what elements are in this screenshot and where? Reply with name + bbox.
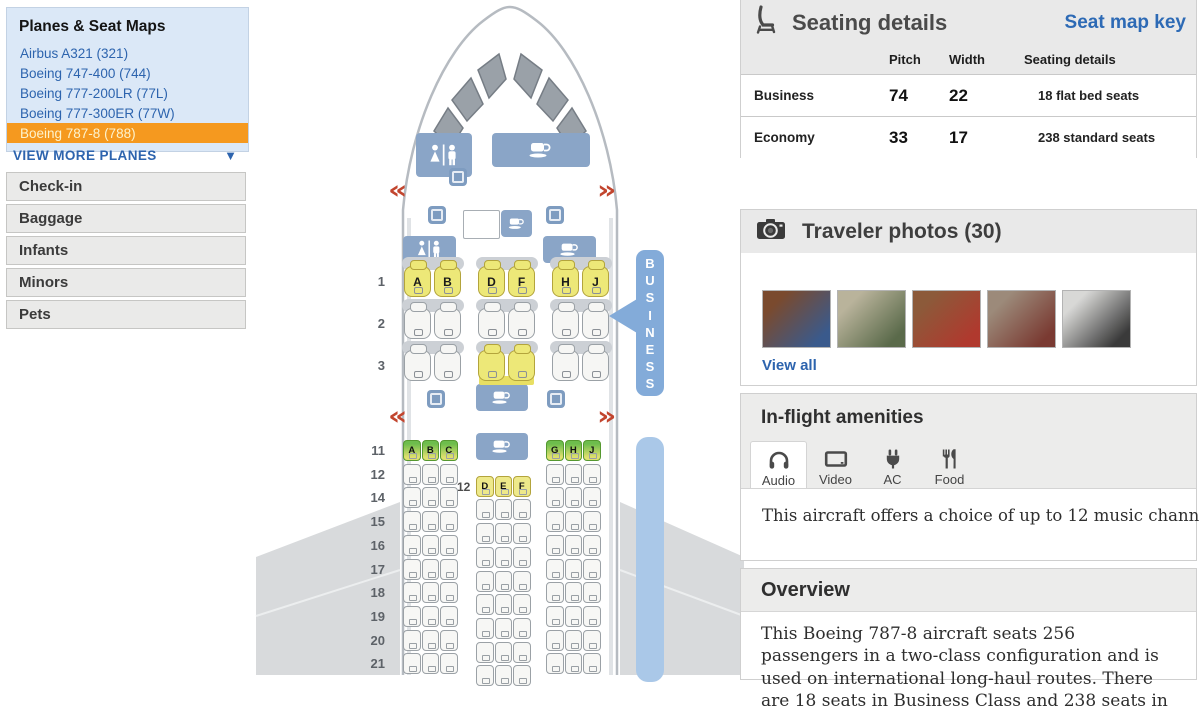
seat[interactable] [582, 308, 609, 339]
seat[interactable] [513, 547, 531, 568]
table-row: Economy3317238 standard seats [741, 116, 1196, 158]
seat[interactable] [546, 582, 564, 603]
closet-icon [547, 390, 565, 408]
amenities-title: In-flight amenities [741, 394, 1196, 429]
traveler-photo[interactable] [837, 290, 906, 348]
sidebar-item-minors[interactable]: Minors [6, 268, 246, 297]
seat-map-key-link[interactable]: Seat map key [1065, 12, 1186, 34]
seat[interactable] [403, 582, 421, 603]
column-header: Seating details [1024, 52, 1196, 67]
photo-strip [741, 253, 1196, 348]
seat[interactable] [552, 350, 579, 381]
seat[interactable] [495, 523, 513, 544]
seat[interactable] [403, 511, 421, 532]
crew-area [463, 210, 500, 239]
seat[interactable] [434, 308, 461, 339]
seat[interactable] [513, 499, 531, 520]
seat[interactable] [434, 350, 461, 381]
plane-link[interactable]: Boeing 747-400 (744) [7, 63, 248, 83]
tab-acpower[interactable]: AC Power [864, 441, 921, 488]
seat-1D[interactable]: D [478, 266, 505, 297]
seating-table: Business742218 flat bed seatsEconomy3317… [741, 74, 1196, 158]
seat[interactable] [476, 547, 494, 568]
view-more-planes[interactable]: VIEW MORE PLANES ▼ [6, 148, 247, 163]
seat[interactable] [403, 487, 421, 508]
seat[interactable] [583, 559, 601, 580]
closet-icon [427, 390, 445, 408]
ac-power-icon [864, 447, 921, 471]
details-value: 238 standard seats [1024, 130, 1196, 145]
seat[interactable] [508, 350, 535, 381]
seat[interactable] [513, 665, 531, 686]
seat[interactable] [476, 618, 494, 639]
seat[interactable] [422, 487, 440, 508]
seat-12F[interactable]: F [513, 476, 531, 497]
seat[interactable] [565, 606, 583, 627]
seat[interactable] [440, 511, 458, 532]
seat[interactable] [440, 582, 458, 603]
tab-video[interactable]: Video [807, 441, 864, 488]
seat[interactable] [404, 350, 431, 381]
seat[interactable] [495, 618, 513, 639]
seat[interactable] [508, 308, 535, 339]
seat[interactable] [403, 464, 421, 485]
seat[interactable] [546, 630, 564, 651]
row-number: 16 [353, 538, 385, 553]
seat-icon [753, 5, 779, 40]
seating-table-header: PitchWidthSeating details [741, 45, 1196, 74]
seat[interactable] [422, 535, 440, 556]
traveler-photos-panel: Traveler photos (30) View all [740, 209, 1197, 386]
amenities-panel: In-flight amenities AudioVideoAC PowerFo… [740, 393, 1197, 561]
tab-label: Audio [751, 473, 806, 488]
economy-cabin-bar [636, 437, 664, 682]
seat[interactable] [476, 642, 494, 663]
seat[interactable] [422, 653, 440, 674]
sidebar-item-baggage[interactable]: Baggage [6, 204, 246, 233]
seating-details-title: Seating details [792, 10, 947, 36]
seat[interactable] [583, 487, 601, 508]
seat-12E[interactable]: E [495, 476, 513, 497]
seat[interactable] [495, 594, 513, 615]
row-number: 2 [353, 316, 385, 331]
row-number: 11 [353, 443, 385, 458]
exit-icon: « [388, 182, 407, 201]
seat[interactable] [440, 653, 458, 674]
seat[interactable] [422, 582, 440, 603]
traveler-photo[interactable] [1062, 290, 1131, 348]
seat[interactable] [476, 499, 494, 520]
seat[interactable] [546, 653, 564, 674]
seat[interactable] [513, 618, 531, 639]
seat[interactable] [403, 535, 421, 556]
seat-1A[interactable]: A [404, 266, 431, 297]
seat-1B[interactable]: B [434, 266, 461, 297]
closet-icon [449, 168, 467, 186]
seat-11J[interactable]: J [583, 440, 601, 461]
seat[interactable] [546, 487, 564, 508]
seat[interactable] [565, 487, 583, 508]
pitch-value: 74 [889, 86, 949, 106]
seat[interactable] [403, 559, 421, 580]
seat[interactable] [440, 559, 458, 580]
width-value: 22 [949, 86, 1024, 106]
overview-title: Overview [761, 579, 850, 602]
row-number: 19 [353, 609, 385, 624]
sidebar-title: Planes & Seat Maps [7, 8, 248, 43]
seat-11G[interactable]: G [546, 440, 564, 461]
plane-list: Airbus A321 (321)Boeing 747-400 (744)Boe… [7, 43, 248, 143]
seat[interactable] [546, 511, 564, 532]
exit-icon: » [597, 408, 616, 427]
tab-audio[interactable]: Audio [750, 441, 807, 488]
mid-row-number: 12 [457, 480, 470, 494]
seat[interactable] [422, 630, 440, 651]
seat[interactable] [546, 606, 564, 627]
seat[interactable] [583, 653, 601, 674]
row-number: 20 [353, 633, 385, 648]
seat[interactable] [478, 350, 505, 381]
seat[interactable] [565, 464, 583, 485]
seat[interactable] [495, 499, 513, 520]
cabin-label: Business [741, 88, 889, 103]
seat[interactable] [583, 582, 601, 603]
column-header: Width [949, 52, 1024, 67]
seat-11H[interactable]: H [565, 440, 583, 461]
seat-11B[interactable]: B [422, 440, 440, 461]
business-label-pointer [609, 299, 637, 333]
row-number: 17 [353, 562, 385, 577]
seat[interactable] [495, 571, 513, 592]
closet-icon [428, 206, 446, 224]
seat[interactable] [403, 653, 421, 674]
exit-icon: » [597, 182, 616, 201]
seat[interactable] [478, 308, 505, 339]
seat[interactable] [495, 665, 513, 686]
plane-link[interactable]: Boeing 777-300ER (77W) [7, 103, 248, 123]
closet-icon [546, 206, 564, 224]
column-header: Pitch [889, 52, 949, 67]
seat[interactable] [583, 535, 601, 556]
seat[interactable] [403, 606, 421, 627]
seat[interactable] [513, 642, 531, 663]
seat[interactable] [476, 571, 494, 592]
seat[interactable] [495, 547, 513, 568]
row-number: 15 [353, 514, 385, 529]
exit-icon: « [388, 408, 407, 427]
seat-1F[interactable]: F [508, 266, 535, 297]
seat-11A[interactable]: A [403, 440, 421, 461]
traveler-photo[interactable] [912, 290, 981, 348]
width-value: 17 [949, 128, 1024, 148]
sidebar-item-checkin[interactable]: Check-in [6, 172, 246, 201]
seat[interactable] [422, 464, 440, 485]
plane-link[interactable]: Airbus A321 (321) [7, 43, 248, 63]
view-more-label: VIEW MORE PLANES [6, 148, 157, 163]
row-number: 14 [353, 490, 385, 505]
sidebar-menu: Check-inBaggageInfantsMinorsPets [6, 172, 246, 332]
galley-icon [501, 210, 532, 237]
row-number: 18 [353, 585, 385, 600]
seat[interactable] [546, 464, 564, 485]
row-number: 3 [353, 358, 385, 373]
seat[interactable] [565, 653, 583, 674]
seat[interactable] [583, 606, 601, 627]
seat[interactable] [476, 523, 494, 544]
seat-1J[interactable]: J [582, 266, 609, 297]
seat[interactable] [513, 523, 531, 544]
seat[interactable] [440, 535, 458, 556]
row-number: 1 [353, 274, 385, 289]
seat[interactable] [513, 594, 531, 615]
seat[interactable] [565, 630, 583, 651]
seat-12D[interactable]: D [476, 476, 494, 497]
seat[interactable] [422, 559, 440, 580]
traveler-photo[interactable] [987, 290, 1056, 348]
seat[interactable] [440, 606, 458, 627]
tab-food[interactable]: Food [921, 441, 978, 488]
seat[interactable] [404, 308, 431, 339]
sidebar-item-pets[interactable]: Pets [6, 300, 246, 329]
seat[interactable] [422, 606, 440, 627]
sidebar-planes-panel: Planes & Seat Maps Airbus A321 (321)Boei… [6, 7, 249, 152]
seat[interactable] [440, 464, 458, 485]
cabin-label: Economy [741, 130, 889, 145]
seat[interactable] [546, 559, 564, 580]
camera-icon [756, 217, 786, 246]
chevron-down-icon: ▼ [224, 148, 237, 163]
tab-label: Video [807, 472, 864, 487]
seat[interactable] [565, 559, 583, 580]
row-number: 21 [353, 656, 385, 671]
seat[interactable] [583, 511, 601, 532]
seat[interactable] [565, 511, 583, 532]
row-number: 12 [353, 467, 385, 482]
sidebar-item-infants[interactable]: Infants [6, 236, 246, 265]
overview-panel: Overview This Boeing 787-8 aircraft seat… [740, 568, 1197, 680]
seat-11C[interactable]: C [440, 440, 458, 461]
amenities-content: This aircraft offers a choice of up to 1… [741, 488, 1196, 560]
amenities-description: This aircraft offers a choice of up to 1… [762, 506, 1196, 525]
amenities-tabs: AudioVideoAC PowerFood [750, 441, 978, 488]
headphones-icon [751, 448, 806, 472]
seat[interactable] [582, 350, 609, 381]
table-row: Business742218 flat bed seats [741, 74, 1196, 116]
seat[interactable] [513, 571, 531, 592]
pitch-value: 33 [889, 128, 949, 148]
seat[interactable] [495, 642, 513, 663]
seat[interactable] [552, 308, 579, 339]
traveler-photos-title: Traveler photos (30) [802, 220, 1002, 244]
seat[interactable] [403, 630, 421, 651]
seat[interactable] [476, 665, 494, 686]
seat-1H[interactable]: H [552, 266, 579, 297]
seat[interactable] [546, 535, 564, 556]
food-icon [921, 447, 978, 471]
seat[interactable] [565, 535, 583, 556]
galley-icon [476, 384, 528, 411]
plane-link[interactable]: Boeing 787-8 (788) [7, 123, 248, 143]
traveler-photo[interactable] [762, 290, 831, 348]
seat[interactable] [440, 630, 458, 651]
seat[interactable] [476, 594, 494, 615]
seat[interactable] [440, 487, 458, 508]
business-cabin-label: B U S I N E S S [636, 250, 664, 396]
seat[interactable] [583, 630, 601, 651]
details-value: 18 flat bed seats [1024, 88, 1196, 103]
overview-text: This Boeing 787-8 aircraft seats 256 pas… [761, 623, 1176, 713]
seat[interactable] [422, 511, 440, 532]
galley-icon [476, 433, 528, 460]
tab-label: Food [921, 472, 978, 487]
video-icon [807, 447, 864, 471]
plane-link[interactable]: Boeing 777-200LR (77L) [7, 83, 248, 103]
galley-icon [492, 133, 590, 167]
view-all-link[interactable]: View all [741, 348, 1196, 374]
seating-details-panel: Seating details Seat map key PitchWidthS… [740, 0, 1197, 158]
seat[interactable] [583, 464, 601, 485]
seat[interactable] [565, 582, 583, 603]
